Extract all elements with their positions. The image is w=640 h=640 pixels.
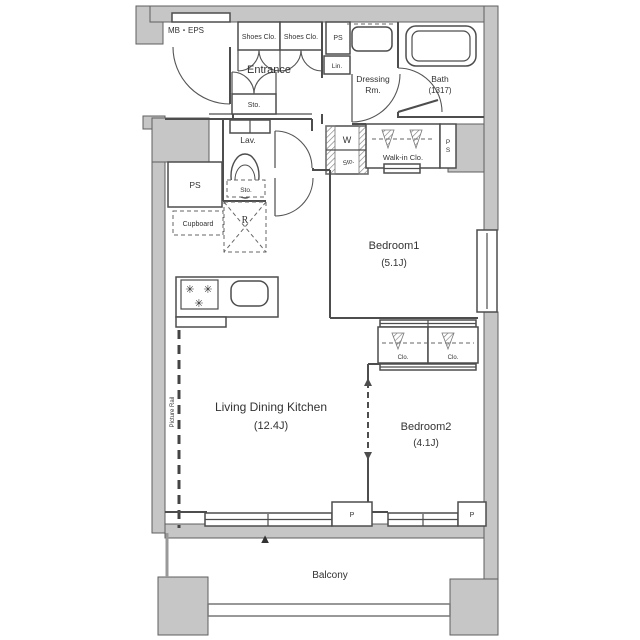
floor-plan-svg: MB・EPS Shoes Clo. Shoes Clo. PS Entrance… [0,0,640,640]
pipe-space-right-p: P [446,139,450,146]
pillar-2-label: P [470,512,475,519]
bedroom1-label: Bedroom1 [369,240,420,252]
wall-left [152,118,165,533]
bath-label: Bath [431,74,449,84]
floor-plan-page: MB・EPS Shoes Clo. Shoes Clo. PS Entrance… [0,0,640,640]
ldk-size-label: (12.4J) [254,420,288,432]
bedroom2-area [364,364,380,513]
dressing-room-label-1: Dressing [356,74,390,84]
bedroom2-walls [368,364,380,513]
ldk-door-arc [275,178,313,216]
bath-size-label: (1317) [428,86,451,95]
lavatory-storage-label: Sto. [240,187,252,194]
closet-2-label: Clo. [448,355,459,361]
entrance-storage-label: Sto. [248,102,261,109]
closet-row [378,320,478,370]
lavatory-label: Lav. [240,135,255,145]
stove-burner-icon: ✳ [194,298,203,310]
bath-door-leaf [398,100,438,112]
balcony-label: Balcony [312,570,348,581]
stove-burner-icon: ✳ [203,284,212,296]
bottom-openings [205,502,486,526]
refrigerator-label: R [242,215,249,226]
vanity-basin-icon [352,27,392,51]
wall-right-upper [484,6,498,230]
balcony-railing [208,604,450,616]
balcony-pillar-left [158,577,208,635]
pipe-space-left-label: PS [189,180,201,190]
lavatory-door-arc [275,131,312,168]
cupboard-label: Cupboard [183,221,214,228]
pipe-space-right-s: S [446,147,451,154]
balcony-area [167,533,450,616]
shoes-closet-2-label: Shoes Clo. [284,34,318,41]
pillar-1-label: P [350,512,355,519]
ldk-label: Living Dining Kitchen [215,400,327,414]
meter-box-label: MB・EPS [168,26,204,35]
front-door-opening [172,13,230,22]
direction-marker-icon: ▲ [259,531,272,546]
wall-left-inner-block [152,118,209,162]
front-door-arc [173,47,230,104]
bedroom2-label: Bedroom2 [401,421,452,433]
closet-1-label: Clo. [398,355,409,361]
stove-burner-icon: ✳ [185,284,194,296]
bedroom1-size-label: (5.1J) [381,258,407,269]
pipe-space-top-label: PS [333,35,343,42]
linen-label: Lin. [332,63,343,70]
pipe-space-right-strip [440,124,456,168]
picture-rail-label: Picture Rail [170,397,176,428]
bedroom2-size-label: (4.1J) [413,438,439,449]
dressing-room-label-2: Rm. [365,85,381,95]
entrance-label: Entrance [247,64,291,76]
walk-in-closet-label: Walk-in Clo. [383,153,423,162]
kitchen-counter-lip [176,317,226,327]
sliding-door-arrow-up [364,378,372,386]
sliding-door-arrow-down [364,452,372,460]
shoes-closet-1-label: Shoes Clo. [242,34,276,41]
balcony-pillar-right [450,579,498,635]
washer-label: W [343,135,352,145]
sink-icon [231,281,268,306]
